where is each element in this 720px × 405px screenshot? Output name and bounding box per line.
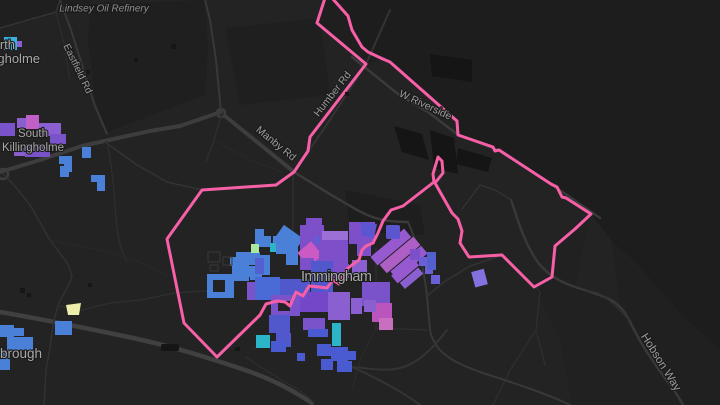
svg-text:Immingham: Immingham [301, 269, 372, 285]
svg-text:South: South [18, 128, 48, 140]
svg-text:North: North [0, 37, 15, 52]
svg-text:Killingholme: Killingholme [0, 51, 40, 66]
svg-text:Killingholme: Killingholme [2, 142, 64, 154]
svg-text:brough: brough [0, 346, 42, 361]
svg-text:Lindsey Oil Refinery: Lindsey Oil Refinery [59, 4, 149, 15]
